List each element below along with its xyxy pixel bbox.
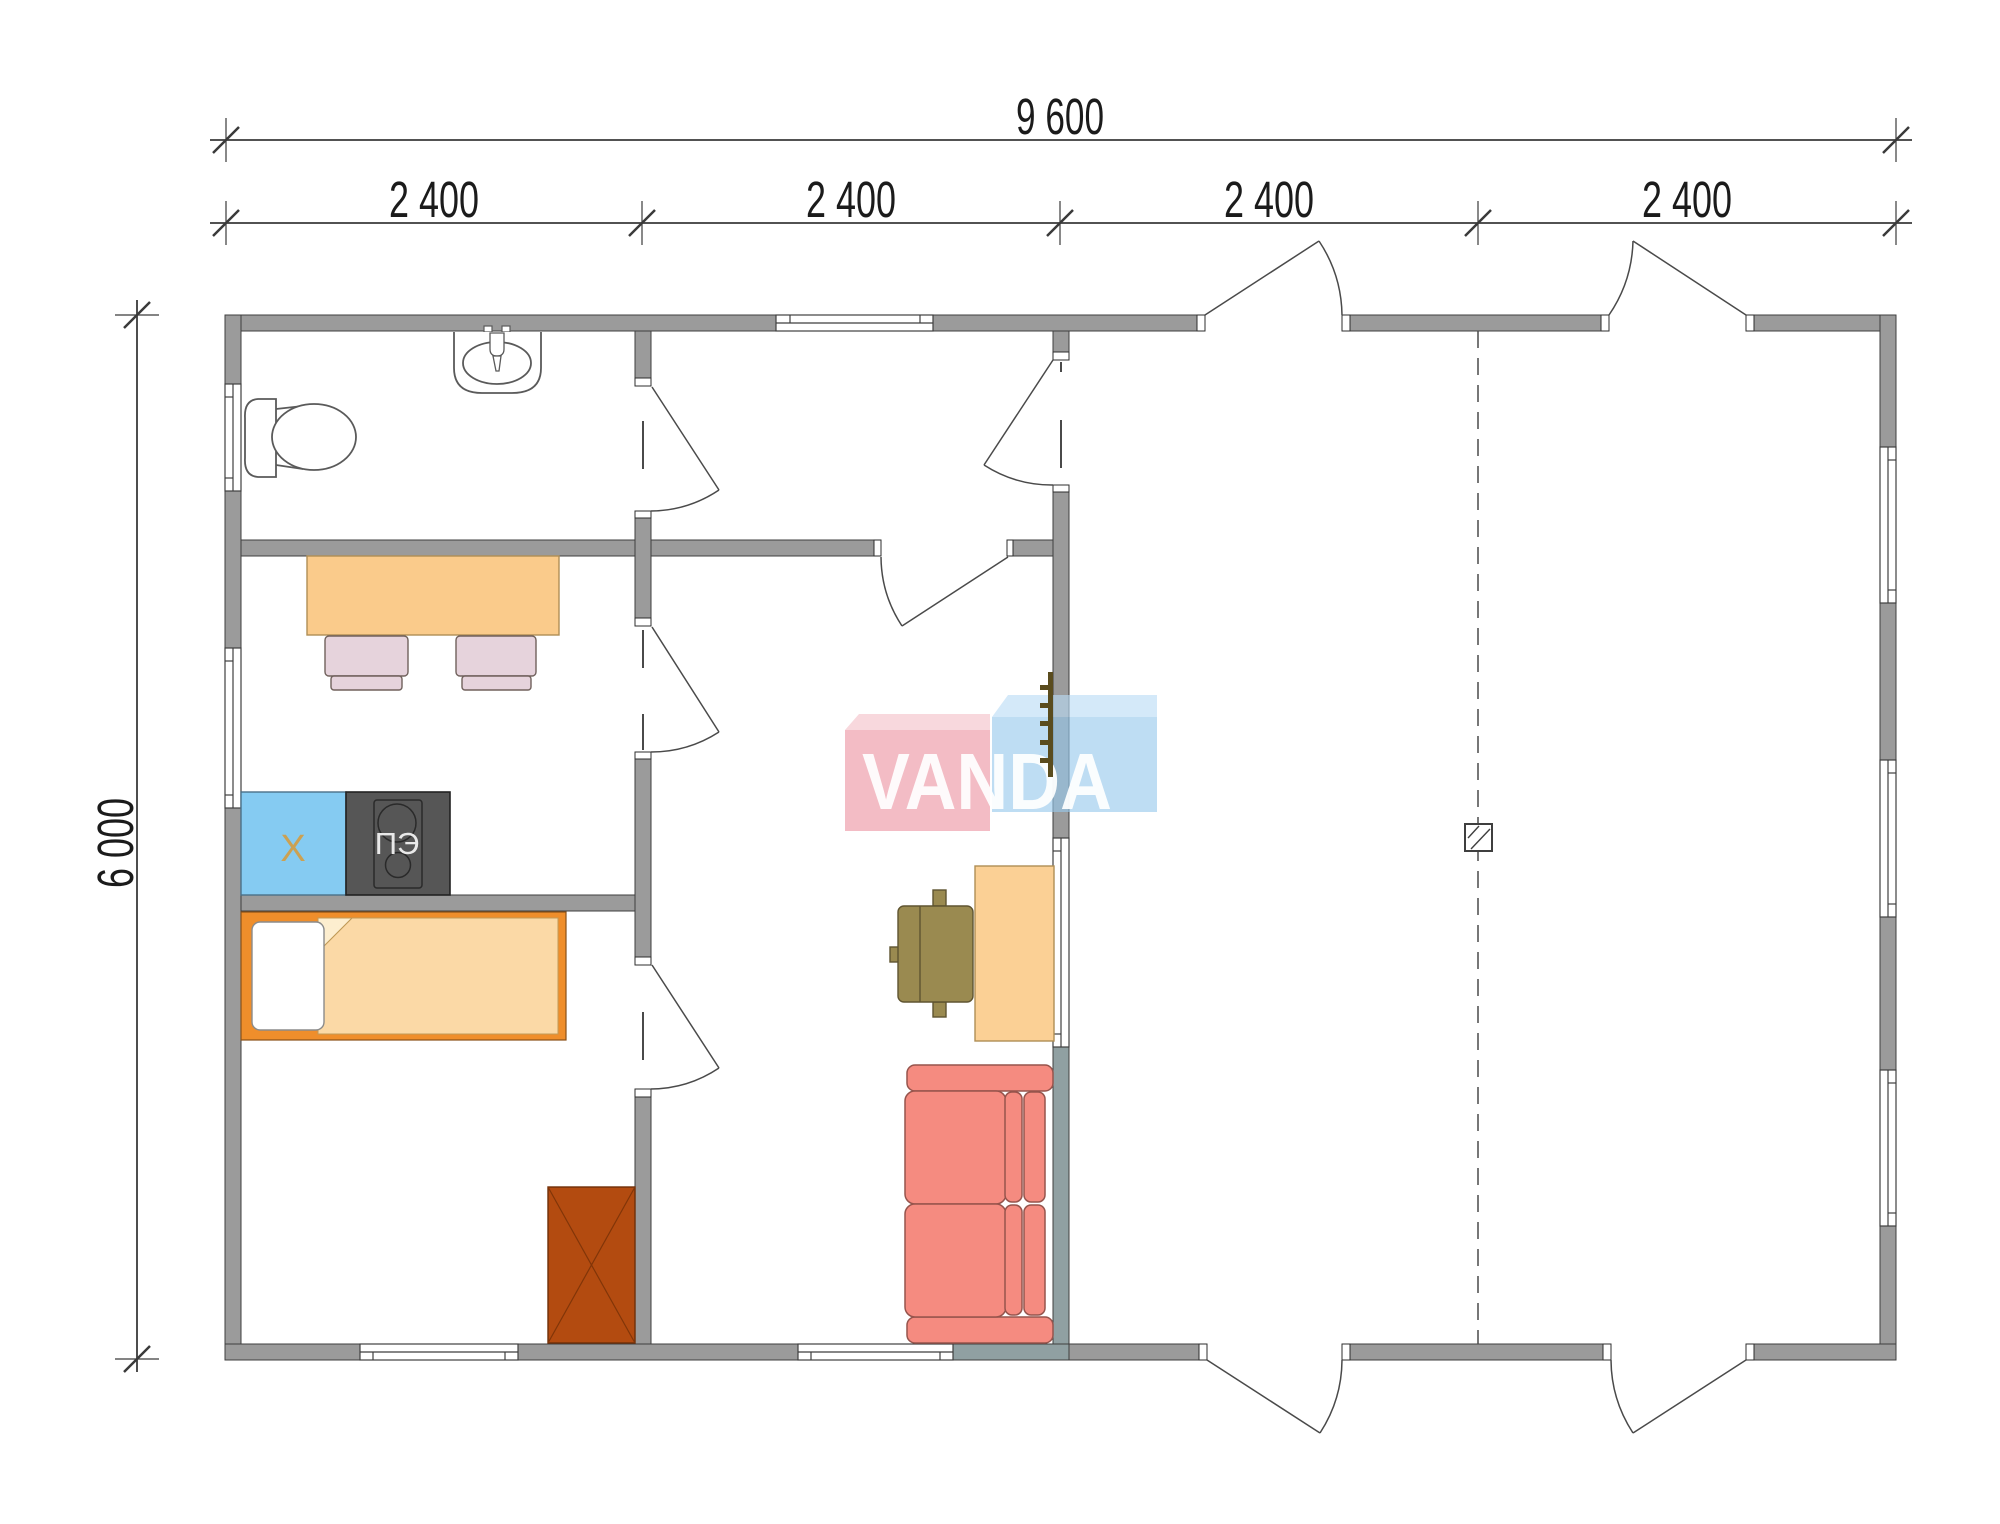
svg-text:VANDA: VANDA	[862, 737, 1112, 826]
svg-text:2 400: 2 400	[1642, 171, 1732, 228]
svg-text:ПЭ: ПЭ	[375, 826, 420, 861]
svg-text:X: X	[280, 828, 305, 870]
svg-text:9 600: 9 600	[1016, 88, 1104, 145]
svg-text:2 400: 2 400	[1224, 171, 1314, 228]
svg-text:2 400: 2 400	[806, 171, 896, 228]
svg-text:2 400: 2 400	[389, 171, 479, 228]
svg-text:6 000: 6 000	[87, 798, 144, 888]
